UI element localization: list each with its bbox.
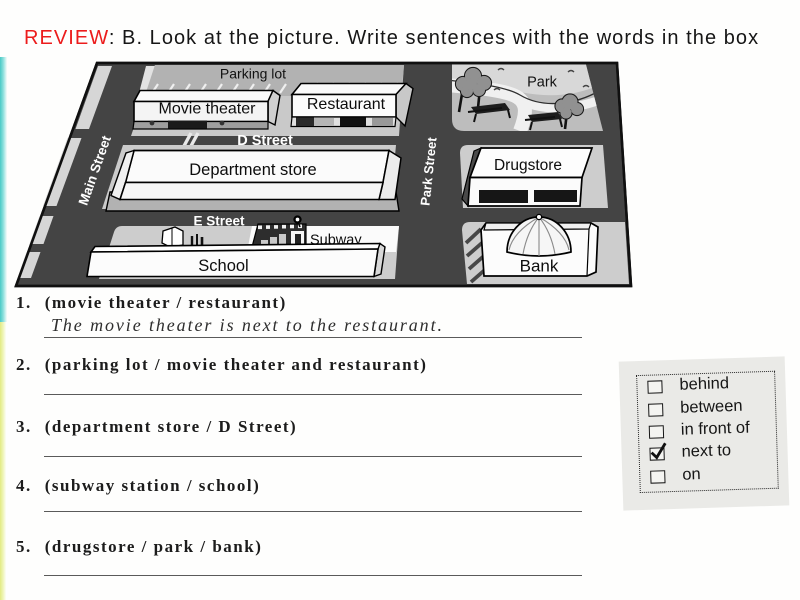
svg-text:School: School [198, 257, 248, 275]
svg-text:Movie theater: Movie theater [159, 101, 257, 118]
svg-text:Bank: Bank [520, 257, 559, 276]
svg-text:Restaurant: Restaurant [307, 96, 386, 113]
svg-text:Department store: Department store [189, 161, 316, 179]
svg-text:Park: Park [527, 75, 558, 91]
svg-text:Parking lot: Parking lot [220, 66, 286, 82]
svg-text:Drugstore: Drugstore [494, 157, 562, 174]
